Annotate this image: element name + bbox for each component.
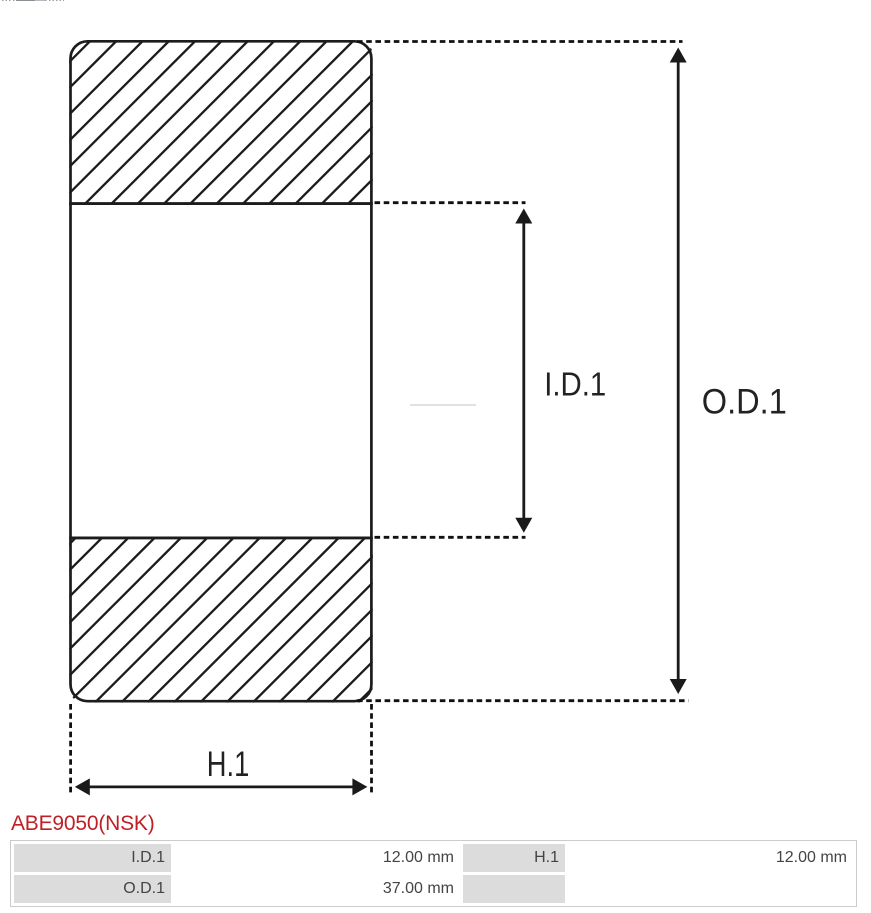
svg-text:O.D.1: O.D.1 bbox=[702, 383, 787, 422]
svg-text:H.1: H.1 bbox=[207, 744, 250, 784]
svg-text:I.D.1: I.D.1 bbox=[544, 366, 606, 403]
